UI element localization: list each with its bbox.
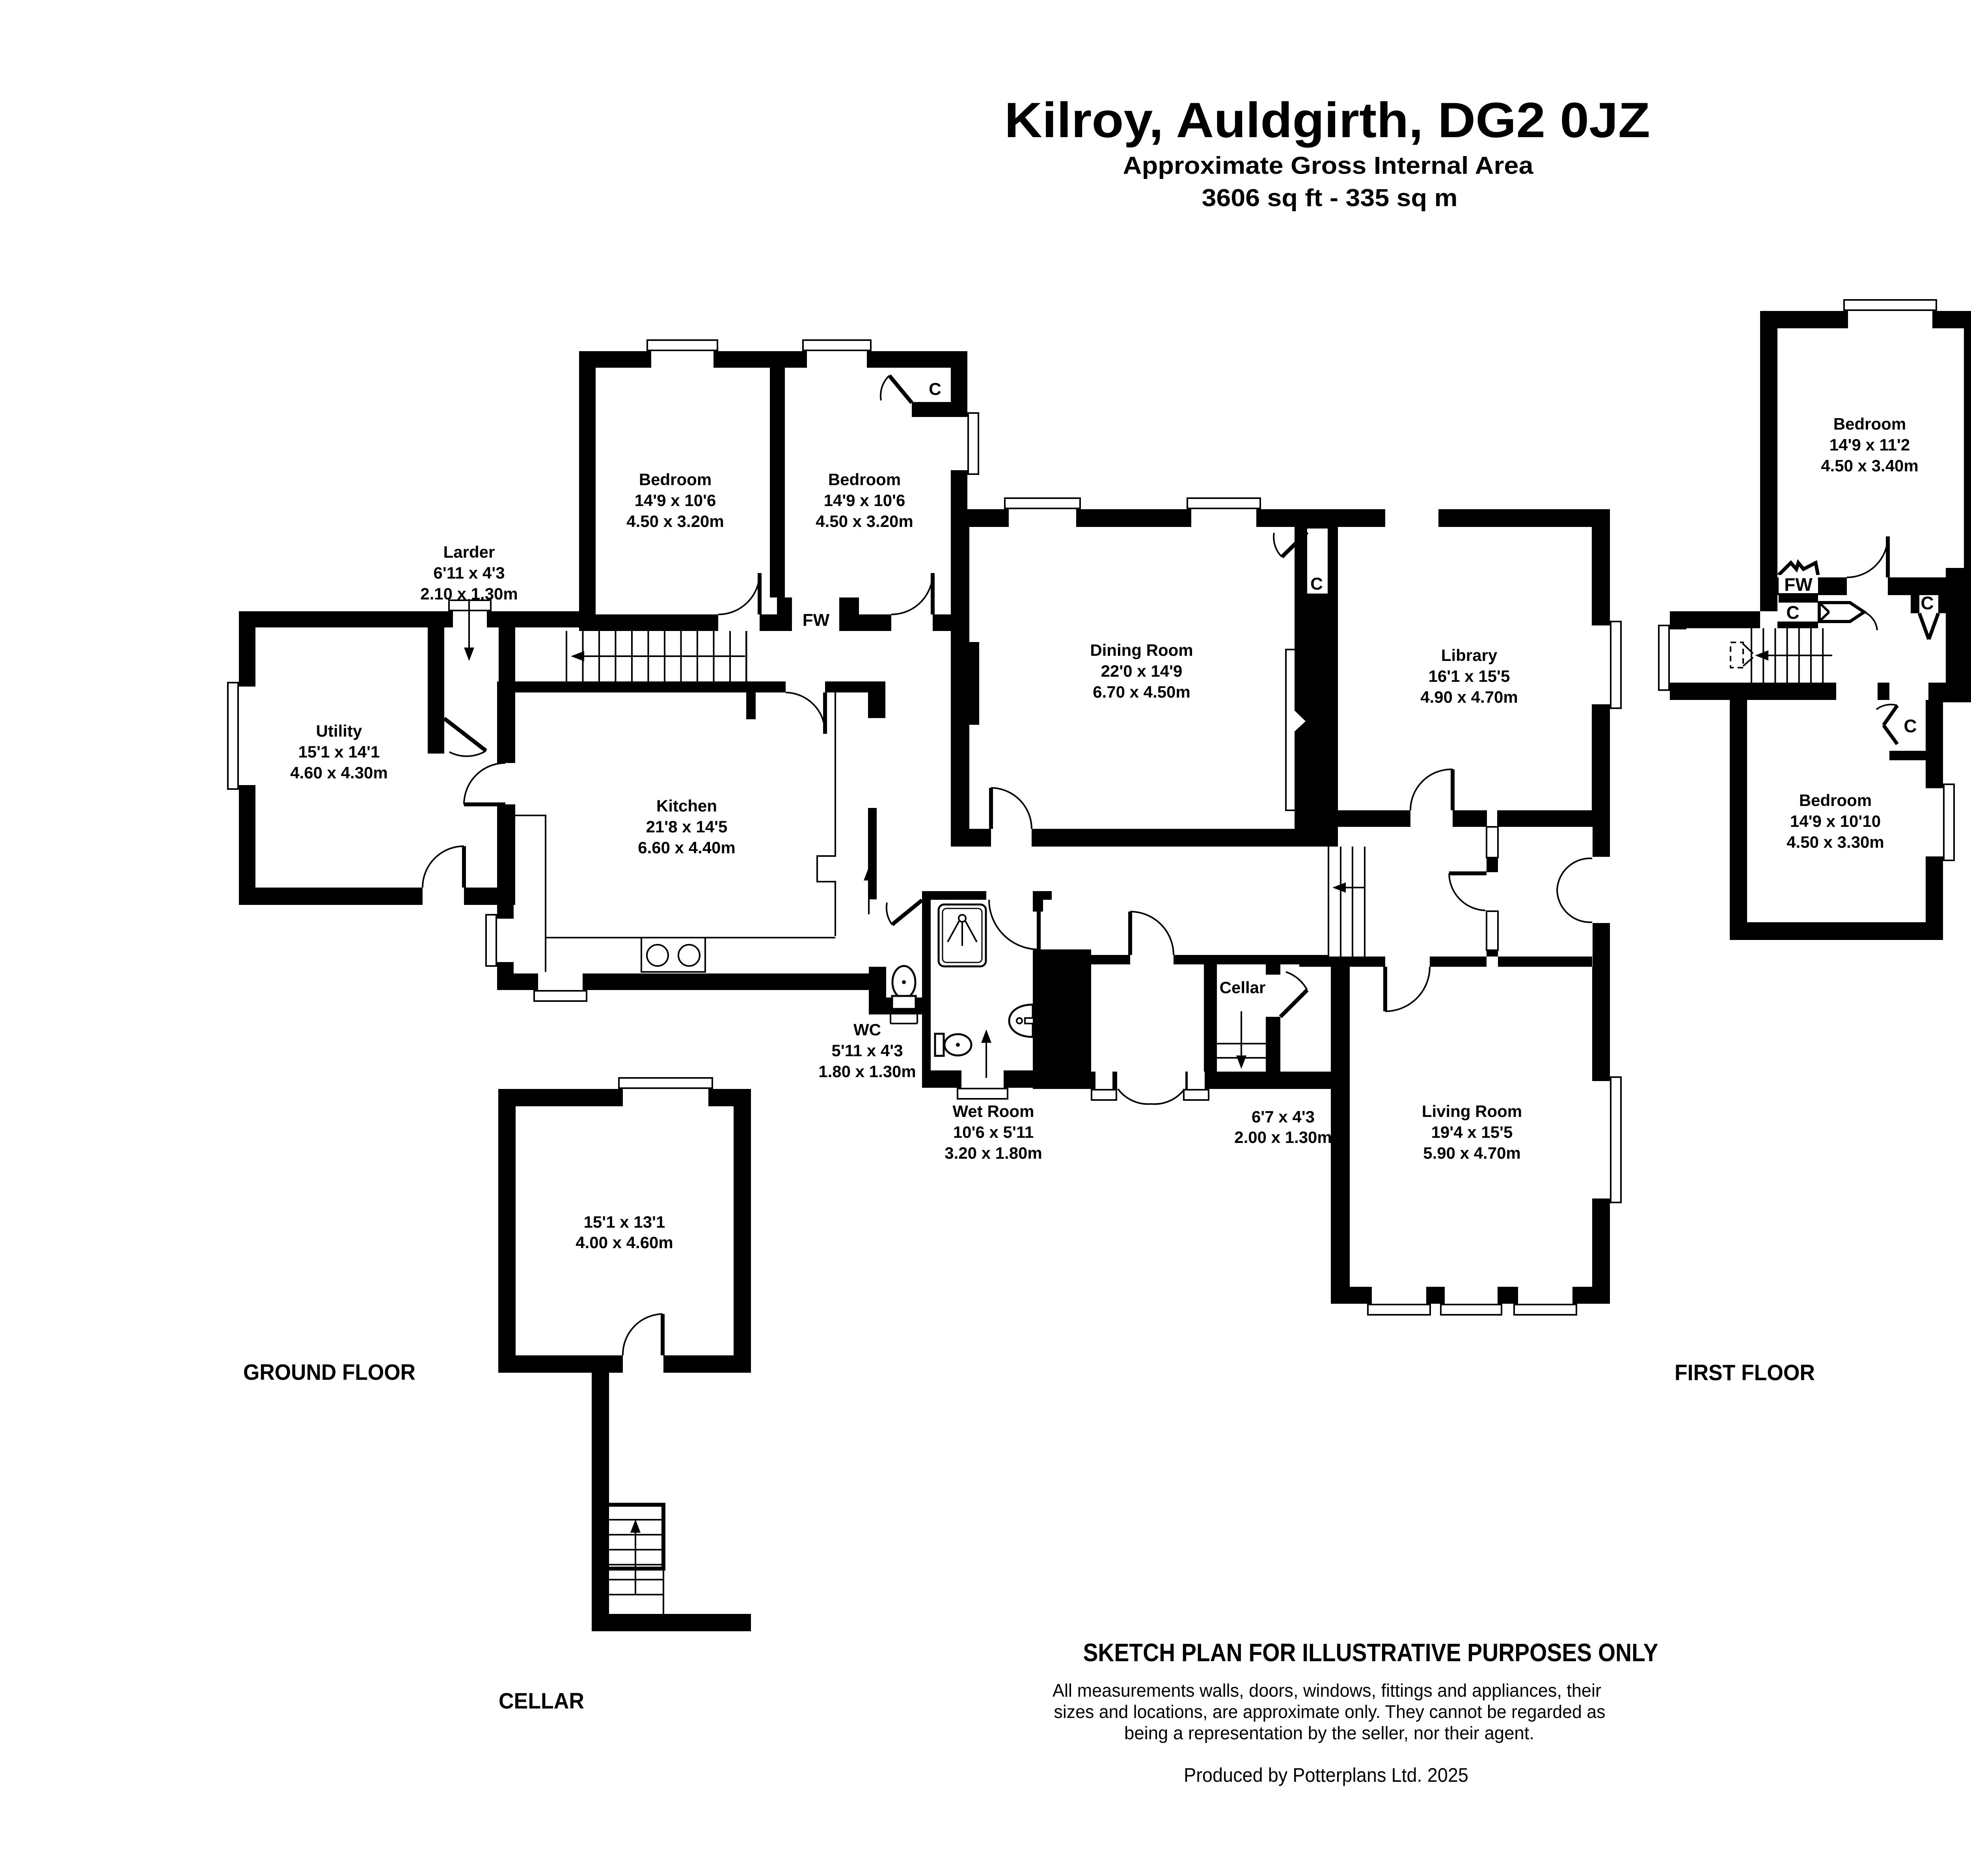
svg-text:Bedroom: Bedroom [639,470,712,489]
svg-text:FW: FW [803,610,830,630]
svg-text:4.50 x 3.20m: 4.50 x 3.20m [626,512,724,530]
svg-text:Bedroom: Bedroom [828,470,901,489]
svg-text:14'9 x 11'2: 14'9 x 11'2 [1829,435,1910,454]
svg-text:All measurements walls, doors,: All measurements walls, doors, windows, … [1053,1680,1601,1701]
svg-text:Bedroom: Bedroom [1799,791,1872,810]
svg-text:C: C [1310,574,1323,594]
svg-text:GROUND FLOOR: GROUND FLOOR [243,1360,415,1385]
svg-text:15'1 x 14'1: 15'1 x 14'1 [298,743,380,761]
svg-text:21'8 x 14'5: 21'8 x 14'5 [646,817,728,836]
svg-text:WC: WC [853,1020,881,1039]
svg-text:14'9 x 10'6: 14'9 x 10'6 [824,491,905,510]
svg-text:Produced by Potterplans Ltd. 2: Produced by Potterplans Ltd. 2025 [1184,1764,1468,1786]
svg-text:5'11 x 4'3: 5'11 x 4'3 [831,1041,903,1060]
svg-text:C: C [1904,716,1917,736]
svg-text:4.50 x 3.20m: 4.50 x 3.20m [816,512,913,530]
svg-text:6'11 x 4'3: 6'11 x 4'3 [433,564,505,582]
svg-text:C: C [1786,602,1799,623]
svg-text:10'6 x 5'11: 10'6 x 5'11 [953,1123,1034,1141]
svg-text:3.20 x 1.80m: 3.20 x 1.80m [945,1144,1042,1162]
svg-text:6.60 x 4.40m: 6.60 x 4.40m [638,838,736,857]
svg-text:5.90 x 4.70m: 5.90 x 4.70m [1423,1144,1521,1162]
svg-text:Bedroom: Bedroom [1833,415,1906,433]
svg-text:19'4 x 15'5: 19'4 x 15'5 [1431,1123,1513,1141]
svg-text:1.80 x 1.30m: 1.80 x 1.30m [818,1062,916,1081]
svg-text:FW: FW [1784,574,1813,595]
svg-text:4.50 x 3.40m: 4.50 x 3.40m [1821,456,1919,475]
svg-text:SKETCH PLAN FOR ILLUSTRATIVE P: SKETCH PLAN FOR ILLUSTRATIVE PURPOSES ON… [1083,1638,1658,1667]
svg-text:6.70 x 4.50m: 6.70 x 4.50m [1093,683,1190,701]
svg-text:CELLAR: CELLAR [499,1688,584,1714]
svg-text:Kitchen: Kitchen [656,797,717,815]
svg-text:Larder: Larder [443,543,495,561]
svg-text:15'1 x 13'1: 15'1 x 13'1 [584,1213,665,1231]
svg-text:Kilroy, Auldgirth, DG2 0JZ: Kilroy, Auldgirth, DG2 0JZ [1004,92,1650,148]
svg-text:C: C [929,380,941,399]
svg-text:3606 sq ft - 335 sq m: 3606 sq ft - 335 sq m [1202,184,1458,212]
svg-text:14'9 x 10'6: 14'9 x 10'6 [635,491,716,510]
svg-text:2.00 x 1.30m: 2.00 x 1.30m [1234,1128,1332,1146]
svg-text:Cellar: Cellar [1220,978,1266,997]
svg-text:Dining Room: Dining Room [1090,641,1193,659]
svg-text:Approximate Gross Internal Are: Approximate Gross Internal Area [1123,152,1534,179]
svg-text:Living Room: Living Room [1422,1102,1522,1120]
svg-text:Wet Room: Wet Room [953,1102,1034,1120]
svg-text:Library: Library [1441,646,1498,664]
svg-text:Utility: Utility [316,722,362,740]
svg-text:14'9 x 10'10: 14'9 x 10'10 [1790,812,1881,830]
svg-text:4.90 x 4.70m: 4.90 x 4.70m [1420,688,1518,706]
svg-text:4.00 x 4.60m: 4.00 x 4.60m [576,1233,673,1252]
svg-text:sizes and locations, are appro: sizes and locations, are approximate onl… [1054,1701,1606,1722]
svg-text:22'0 x 14'9: 22'0 x 14'9 [1101,662,1183,680]
svg-text:4.50 x 3.30m: 4.50 x 3.30m [1787,833,1884,851]
svg-text:4.60 x 4.30m: 4.60 x 4.30m [290,763,388,782]
svg-text:6'7 x 4'3: 6'7 x 4'3 [1252,1107,1315,1126]
svg-text:16'1 x 15'5: 16'1 x 15'5 [1429,667,1510,685]
svg-text:being a representation by the: being a representation by the seller, no… [1124,1723,1534,1743]
svg-text:C: C [1921,593,1934,613]
svg-text:FIRST FLOOR: FIRST FLOOR [1675,1360,1815,1385]
